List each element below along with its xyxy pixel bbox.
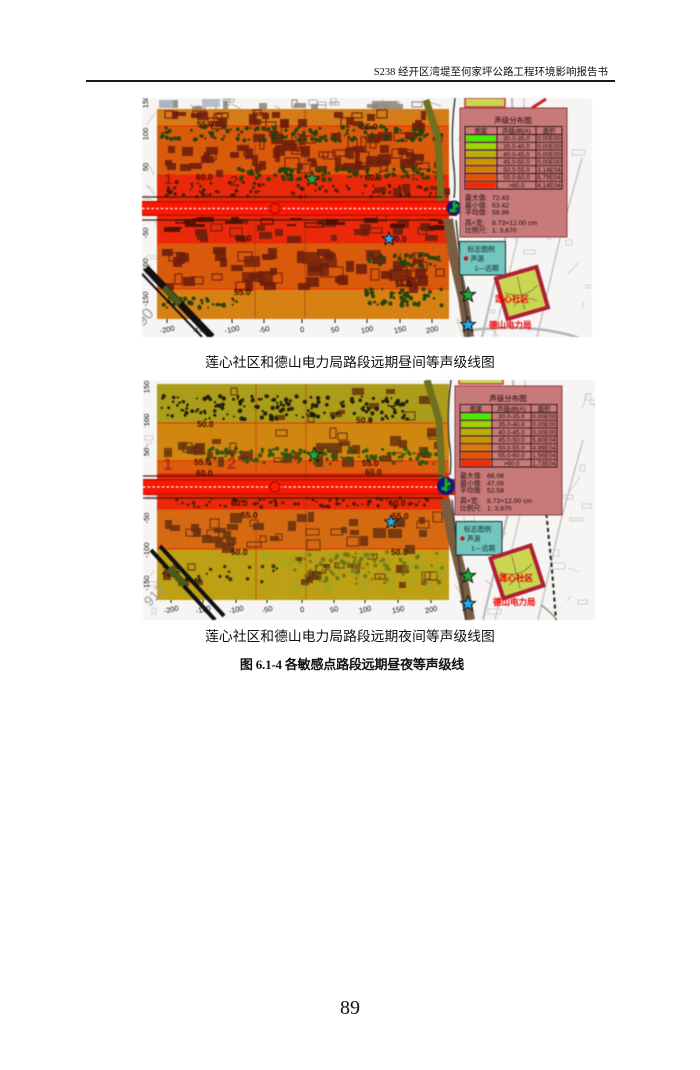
svg-text:50: 50 bbox=[142, 163, 150, 171]
svg-text:德山电力局: 德山电力局 bbox=[493, 597, 536, 607]
svg-text:5.80E04: 5.80E04 bbox=[532, 437, 556, 444]
svg-text:图案: 图案 bbox=[470, 404, 483, 413]
svg-text:30.0-35.0: 30.0-35.0 bbox=[503, 136, 530, 143]
svg-text:-50: -50 bbox=[143, 513, 151, 524]
svg-text:6.79E04: 6.79E04 bbox=[537, 175, 561, 182]
svg-text:55.0-60.0: 55.0-60.0 bbox=[503, 175, 530, 182]
svg-text:60.0: 60.0 bbox=[196, 172, 213, 182]
svg-text:60.0: 60.0 bbox=[365, 467, 382, 477]
svg-text:52.58: 52.58 bbox=[487, 488, 504, 495]
svg-text:8.73×12.00 cm: 8.73×12.00 cm bbox=[487, 498, 532, 505]
svg-text:最大值:: 最大值: bbox=[460, 471, 482, 480]
svg-text:2: 2 bbox=[227, 454, 236, 473]
svg-text:德山电力局: 德山电力局 bbox=[489, 320, 532, 330]
svg-text:高×宽:: 高×宽: bbox=[465, 218, 485, 227]
svg-text:100: 100 bbox=[142, 128, 150, 141]
svg-text:1—远期: 1—远期 bbox=[471, 545, 495, 553]
svg-text:1: 3,670: 1: 3,670 bbox=[492, 227, 517, 234]
svg-text:比例尺:: 比例尺: bbox=[465, 225, 487, 234]
svg-text:声级分布图: 声级分布图 bbox=[489, 393, 527, 403]
svg-text:60.0: 60.0 bbox=[235, 233, 252, 243]
svg-text:0.00E00: 0.00E00 bbox=[537, 136, 561, 143]
svg-text:1: 1 bbox=[164, 171, 172, 188]
svg-text:2: 2 bbox=[230, 173, 238, 190]
svg-text:60.0: 60.0 bbox=[231, 498, 248, 508]
svg-text:35.0-40.0: 35.0-40.0 bbox=[498, 422, 525, 429]
svg-text:0.00E00: 0.00E00 bbox=[537, 144, 561, 151]
svg-text:1: 1 bbox=[163, 455, 172, 474]
svg-text:150: 150 bbox=[143, 381, 151, 394]
svg-text:60.0: 60.0 bbox=[196, 468, 213, 478]
svg-text:高×宽:: 高×宽: bbox=[460, 496, 480, 505]
svg-text:45.0-50.0: 45.0-50.0 bbox=[498, 437, 525, 444]
svg-text:1—远期: 1—远期 bbox=[475, 265, 499, 273]
svg-text:1: 3,670: 1: 3,670 bbox=[487, 505, 512, 512]
svg-text:45.0-50.0: 45.0-50.0 bbox=[503, 159, 530, 166]
svg-text:55.0: 55.0 bbox=[241, 510, 258, 520]
svg-text:53.42: 53.42 bbox=[492, 202, 509, 209]
svg-text:1.56E04: 1.56E04 bbox=[532, 453, 556, 460]
svg-text:-100: -100 bbox=[142, 258, 150, 273]
svg-text:55.0: 55.0 bbox=[197, 119, 214, 129]
svg-text:-150: -150 bbox=[142, 291, 150, 306]
svg-text:55.0: 55.0 bbox=[194, 457, 211, 467]
svg-text:0.00E00: 0.00E00 bbox=[537, 159, 561, 166]
svg-text:声级dB(A): 声级dB(A) bbox=[502, 126, 531, 135]
svg-text:58.96: 58.96 bbox=[492, 210, 509, 217]
svg-text:0.00E00: 0.00E00 bbox=[532, 429, 556, 436]
svg-text:面积: 面积 bbox=[538, 404, 551, 413]
svg-text:50.0: 50.0 bbox=[391, 547, 408, 557]
svg-text:莲心社区: 莲心社区 bbox=[499, 573, 534, 583]
svg-text:平均值:: 平均值: bbox=[465, 208, 487, 217]
svg-text:100: 100 bbox=[143, 414, 151, 427]
svg-text:50.0-55.0: 50.0-55.0 bbox=[503, 167, 530, 174]
svg-text:40.0-45.0: 40.0-45.0 bbox=[498, 429, 525, 436]
svg-text:150: 150 bbox=[142, 98, 150, 108]
svg-text:>60.0: >60.0 bbox=[504, 461, 520, 468]
svg-text:72.43: 72.43 bbox=[492, 195, 509, 202]
svg-text:47.05: 47.05 bbox=[487, 480, 504, 487]
svg-text:4.99E04: 4.99E04 bbox=[532, 445, 556, 452]
svg-text:4.14E04: 4.14E04 bbox=[537, 183, 561, 190]
svg-text:55.0: 55.0 bbox=[395, 279, 412, 289]
svg-text:3.14E04: 3.14E04 bbox=[537, 167, 561, 174]
svg-text:声级分布图: 声级分布图 bbox=[494, 115, 532, 125]
svg-text:-100: -100 bbox=[143, 542, 151, 557]
svg-text:声源: 声源 bbox=[471, 254, 485, 263]
svg-text:8.73×12.00 cm: 8.73×12.00 cm bbox=[492, 220, 537, 227]
svg-text:30.0-35.0: 30.0-35.0 bbox=[498, 414, 525, 421]
svg-text:40.0-45.0: 40.0-45.0 bbox=[503, 151, 530, 158]
svg-text:莲心社区: 莲心社区 bbox=[495, 294, 530, 304]
svg-text:55.0: 55.0 bbox=[234, 287, 251, 297]
svg-text:50.0: 50.0 bbox=[231, 547, 248, 557]
svg-text:面积: 面积 bbox=[543, 126, 556, 135]
svg-text:最小值:: 最小值: bbox=[465, 200, 487, 209]
svg-text:比例尺:: 比例尺: bbox=[460, 503, 482, 512]
svg-text:50: 50 bbox=[143, 448, 151, 456]
svg-text:60.0: 60.0 bbox=[389, 498, 406, 508]
svg-text:55.0: 55.0 bbox=[361, 122, 378, 132]
svg-text:35.0-40.0: 35.0-40.0 bbox=[503, 144, 530, 151]
svg-text:图案: 图案 bbox=[475, 126, 488, 135]
svg-text:60.0: 60.0 bbox=[365, 173, 382, 183]
svg-text:标志图例: 标志图例 bbox=[468, 245, 495, 254]
svg-text:55.0-60.0: 55.0-60.0 bbox=[498, 453, 525, 460]
svg-text:声级dB(A): 声级dB(A) bbox=[497, 404, 526, 413]
svg-text:0.00E00: 0.00E00 bbox=[532, 422, 556, 429]
svg-text:0.00E00: 0.00E00 bbox=[537, 151, 561, 158]
svg-text:>60.0: >60.0 bbox=[509, 183, 525, 190]
svg-text:-50: -50 bbox=[142, 228, 150, 239]
svg-text:1.73E04: 1.73E04 bbox=[532, 461, 556, 468]
svg-text:66.06: 66.06 bbox=[487, 473, 504, 480]
svg-text:-150: -150 bbox=[143, 575, 151, 590]
svg-text:50.0: 50.0 bbox=[197, 419, 214, 429]
svg-text:0.00E00: 0.00E00 bbox=[532, 414, 556, 421]
svg-text:标志图例: 标志图例 bbox=[464, 525, 491, 534]
svg-text:50.0: 50.0 bbox=[356, 415, 373, 425]
svg-text:最小值:: 最小值: bbox=[460, 478, 482, 487]
svg-text:最大值:: 最大值: bbox=[465, 193, 487, 202]
svg-text:声源: 声源 bbox=[467, 534, 481, 543]
svg-text:平均值:: 平均值: bbox=[460, 486, 482, 495]
svg-text:50.0-55.0: 50.0-55.0 bbox=[498, 445, 525, 452]
